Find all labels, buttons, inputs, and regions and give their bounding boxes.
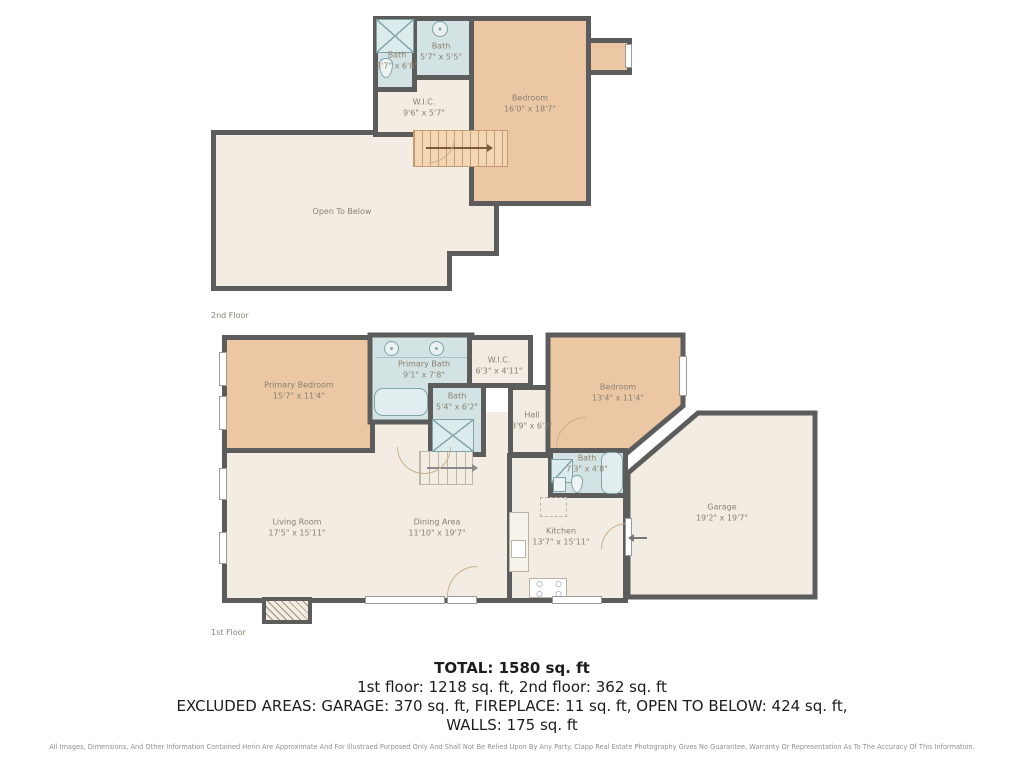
room-label: Primary Bath 9'1" x 7'8" bbox=[398, 360, 450, 381]
room-name: Garage bbox=[696, 503, 748, 514]
room-name: Bath bbox=[566, 454, 608, 465]
room-label: Bath 5'7" x 5'5" bbox=[420, 42, 462, 63]
room-name: Kitchen bbox=[532, 527, 589, 538]
room-dims: 3'9" x 6'2" bbox=[511, 421, 553, 432]
room-name: Primary Bedroom bbox=[264, 381, 334, 392]
floor-label-1st: 1st Floor bbox=[211, 628, 246, 637]
sink-icon bbox=[432, 21, 448, 37]
window bbox=[679, 356, 687, 396]
room-dims: 3'7" x 6'8" bbox=[376, 61, 418, 72]
room-label: Open To Below bbox=[313, 207, 372, 218]
room-dims: 5'7" x 5'5" bbox=[420, 52, 462, 63]
vanity-counter-line bbox=[375, 357, 467, 358]
room-label: Kitchen 13'7" x 15'11" bbox=[532, 527, 589, 548]
walls-area: WALLS: 175 sq. ft bbox=[0, 716, 1024, 735]
disclaimer-text: All Images, Dimensions, And Other Inform… bbox=[0, 743, 1024, 751]
stair-arrow-icon bbox=[472, 464, 478, 472]
stove-icon bbox=[529, 578, 567, 598]
sink-icon bbox=[384, 341, 399, 356]
room-dims: 11'10" x 19'7" bbox=[408, 528, 465, 539]
room-name: Open To Below bbox=[313, 207, 372, 218]
kitchen-sink-icon bbox=[511, 540, 526, 558]
window bbox=[219, 396, 227, 430]
room-name: Dining Area bbox=[408, 518, 465, 529]
room-label: Garage 19'2" x 19'7" bbox=[696, 503, 748, 524]
window bbox=[552, 596, 602, 604]
room-dims: 5'4" x 6'2" bbox=[436, 402, 478, 413]
room-name: Living Room bbox=[268, 518, 325, 529]
room-name: Bath bbox=[376, 51, 418, 62]
room-name: Bedroom bbox=[592, 383, 644, 394]
floor-label-2nd: 2nd Floor bbox=[211, 311, 249, 320]
room-label: Dining Area 11'10" x 19'7" bbox=[408, 518, 465, 539]
window bbox=[219, 468, 227, 500]
room-dims: 13'4" x 11'4" bbox=[592, 393, 644, 404]
room-label: Primary Bedroom 15'7" x 11'4" bbox=[264, 381, 334, 402]
room-name: W.I.C. bbox=[403, 98, 445, 109]
room-dims: 6'3" x 4'11" bbox=[475, 366, 522, 377]
shower-icon bbox=[376, 19, 414, 53]
total-area: TOTAL: 1580 sq. ft bbox=[0, 659, 1024, 678]
room-label: W.I.C. 9'6" x 5'7" bbox=[403, 98, 445, 119]
room-dims: 13'7" x 15'11" bbox=[532, 537, 589, 548]
bathtub-icon bbox=[374, 388, 428, 416]
room-dims: 9'1" x 7'8" bbox=[398, 370, 450, 381]
floor-areas: 1st floor: 1218 sq. ft, 2nd floor: 362 s… bbox=[0, 678, 1024, 697]
window bbox=[625, 44, 632, 68]
room-dims: 16'0" x 18'7" bbox=[504, 104, 556, 115]
excluded-areas: EXCLUDED AREAS: GARAGE: 370 sq. ft, FIRE… bbox=[0, 697, 1024, 716]
floor-plan: Bath 3'7" x 6'8" Bath 5'7" x 5'5" W.I.C.… bbox=[0, 0, 1024, 768]
fireplace bbox=[262, 597, 312, 624]
room-name: Bath bbox=[420, 42, 462, 53]
sink-icon bbox=[553, 477, 566, 492]
room-name: W.I.C. bbox=[475, 356, 522, 367]
room-label: Bath 7'3" x 4'8" bbox=[566, 454, 608, 475]
room-dims: 7'3" x 4'8" bbox=[566, 464, 608, 475]
room-label: Hall 3'9" x 6'2" bbox=[511, 411, 553, 432]
room-dims: 15'7" x 11'4" bbox=[264, 391, 334, 402]
room-label: Bath 5'4" x 6'2" bbox=[436, 392, 478, 413]
room-name: Bath bbox=[436, 392, 478, 403]
room-label: Bedroom 16'0" x 18'7" bbox=[504, 94, 556, 115]
area-summary: TOTAL: 1580 sq. ft 1st floor: 1218 sq. f… bbox=[0, 659, 1024, 735]
room-label: Bath 3'7" x 6'8" bbox=[376, 51, 418, 72]
garage-door-line bbox=[633, 537, 647, 539]
room-name: Hall bbox=[511, 411, 553, 422]
room-dims: 9'6" x 5'7" bbox=[403, 108, 445, 119]
room-dims: 19'2" x 19'7" bbox=[696, 513, 748, 524]
staircase-2nd bbox=[413, 130, 508, 167]
room-label: W.I.C. 6'3" x 4'11" bbox=[475, 356, 522, 377]
room-name: Primary Bath bbox=[398, 360, 450, 371]
room-name: Bedroom bbox=[504, 94, 556, 105]
front-door-gap bbox=[447, 596, 477, 604]
sink-icon bbox=[429, 341, 444, 356]
stair-arrow-icon bbox=[487, 144, 493, 152]
garage-door-arrow-icon bbox=[628, 534, 634, 542]
refrigerator-icon bbox=[540, 497, 567, 517]
room-dims: 17'5" x 15'11" bbox=[268, 528, 325, 539]
window bbox=[219, 532, 227, 564]
window bbox=[365, 596, 445, 604]
room-label: Living Room 17'5" x 15'11" bbox=[268, 518, 325, 539]
room-label: Bedroom 13'4" x 11'4" bbox=[592, 383, 644, 404]
window bbox=[219, 352, 227, 386]
open-to-below-notch bbox=[447, 251, 499, 291]
